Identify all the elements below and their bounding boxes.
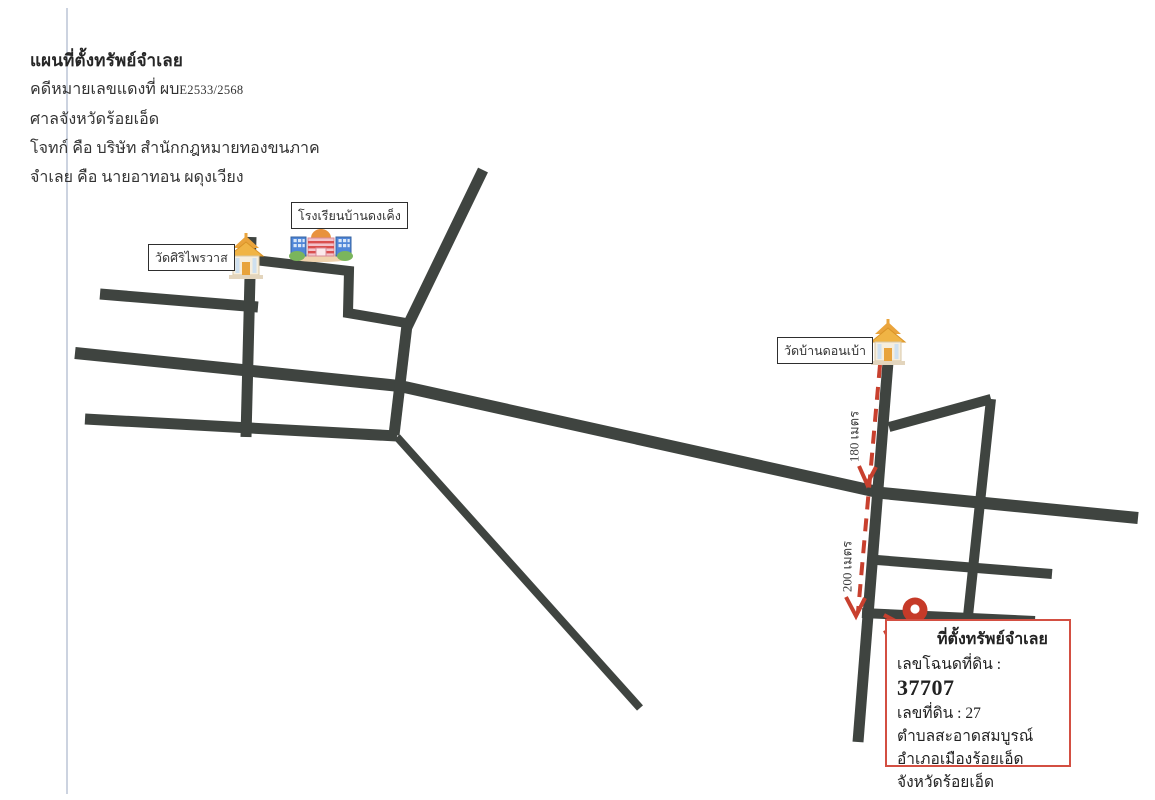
deed-number-line: เลขโฉนดที่ดิน : 37707: [897, 653, 1061, 702]
parcel-number-value: 27: [965, 705, 981, 722]
distance-200m-label: 200 เมตร: [837, 536, 858, 598]
parcel-label: เลขที่ดิน :: [897, 705, 961, 722]
temple-right-label: วัดบ้านดอนเบ้า: [777, 337, 873, 364]
school-icon: [289, 226, 353, 262]
deed-label: เลขโฉนดที่ดิน :: [897, 656, 1001, 673]
district-line: อำเภอเมืองร้อยเอ็ด: [897, 748, 1061, 771]
school-label-text: โรงเรียนบ้านดงเค็ง: [298, 209, 401, 223]
subdistrict-line: ตำบลสะอาดสมบูรณ์: [897, 725, 1061, 748]
road-right-mid-horizontal: [877, 560, 1052, 574]
province-line: จังหวัดร้อยเอ็ด: [897, 771, 1061, 794]
temple-right-icon: [871, 319, 905, 365]
road-right-branch-up: [889, 399, 991, 427]
school-label: โรงเรียนบ้านดงเค็ง: [291, 202, 408, 229]
road-long-south-diagonal: [397, 437, 640, 708]
info-box-title: ที่ตั้งทรัพย์จำเลย: [897, 627, 1061, 653]
temple-left-label: วัดศิริไพรวาส: [148, 244, 235, 271]
map-document-page: แผนที่ตั้งทรัพย์จำเลย คดีหมายเลขแดงที่ ผ…: [0, 0, 1155, 800]
parcel-number-line: เลขที่ดิน : 27: [897, 702, 1061, 725]
temple-left-label-text: วัดศิริไพรวาส: [155, 251, 228, 265]
road-junction-connector: [394, 325, 407, 435]
distance-180m-label: 180 เมตร: [844, 406, 865, 468]
road-topleft-horizontal: [100, 294, 258, 307]
road-school-loop: [254, 260, 406, 323]
deed-number-value: 37707: [897, 675, 955, 700]
temple-right-label-text: วัดบ้านดอนเบ้า: [784, 344, 866, 358]
road-northeast-diagonal: [407, 170, 483, 327]
property-info-box: ที่ตั้งทรัพย์จำเลย เลขโฉนดที่ดิน : 37707…: [885, 619, 1071, 767]
